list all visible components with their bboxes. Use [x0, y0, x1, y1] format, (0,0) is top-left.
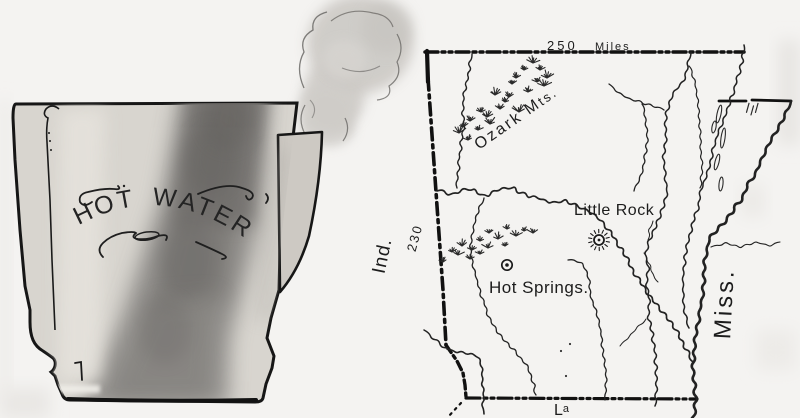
svg-text:Miles: Miles — [595, 41, 631, 53]
svg-text:Hot Springs.: Hot Springs. — [489, 278, 589, 297]
svg-text:250: 250 — [547, 38, 578, 53]
svg-text:Little Rock: Little Rock — [574, 202, 655, 219]
svg-text:Miss.: Miss. — [709, 267, 740, 339]
